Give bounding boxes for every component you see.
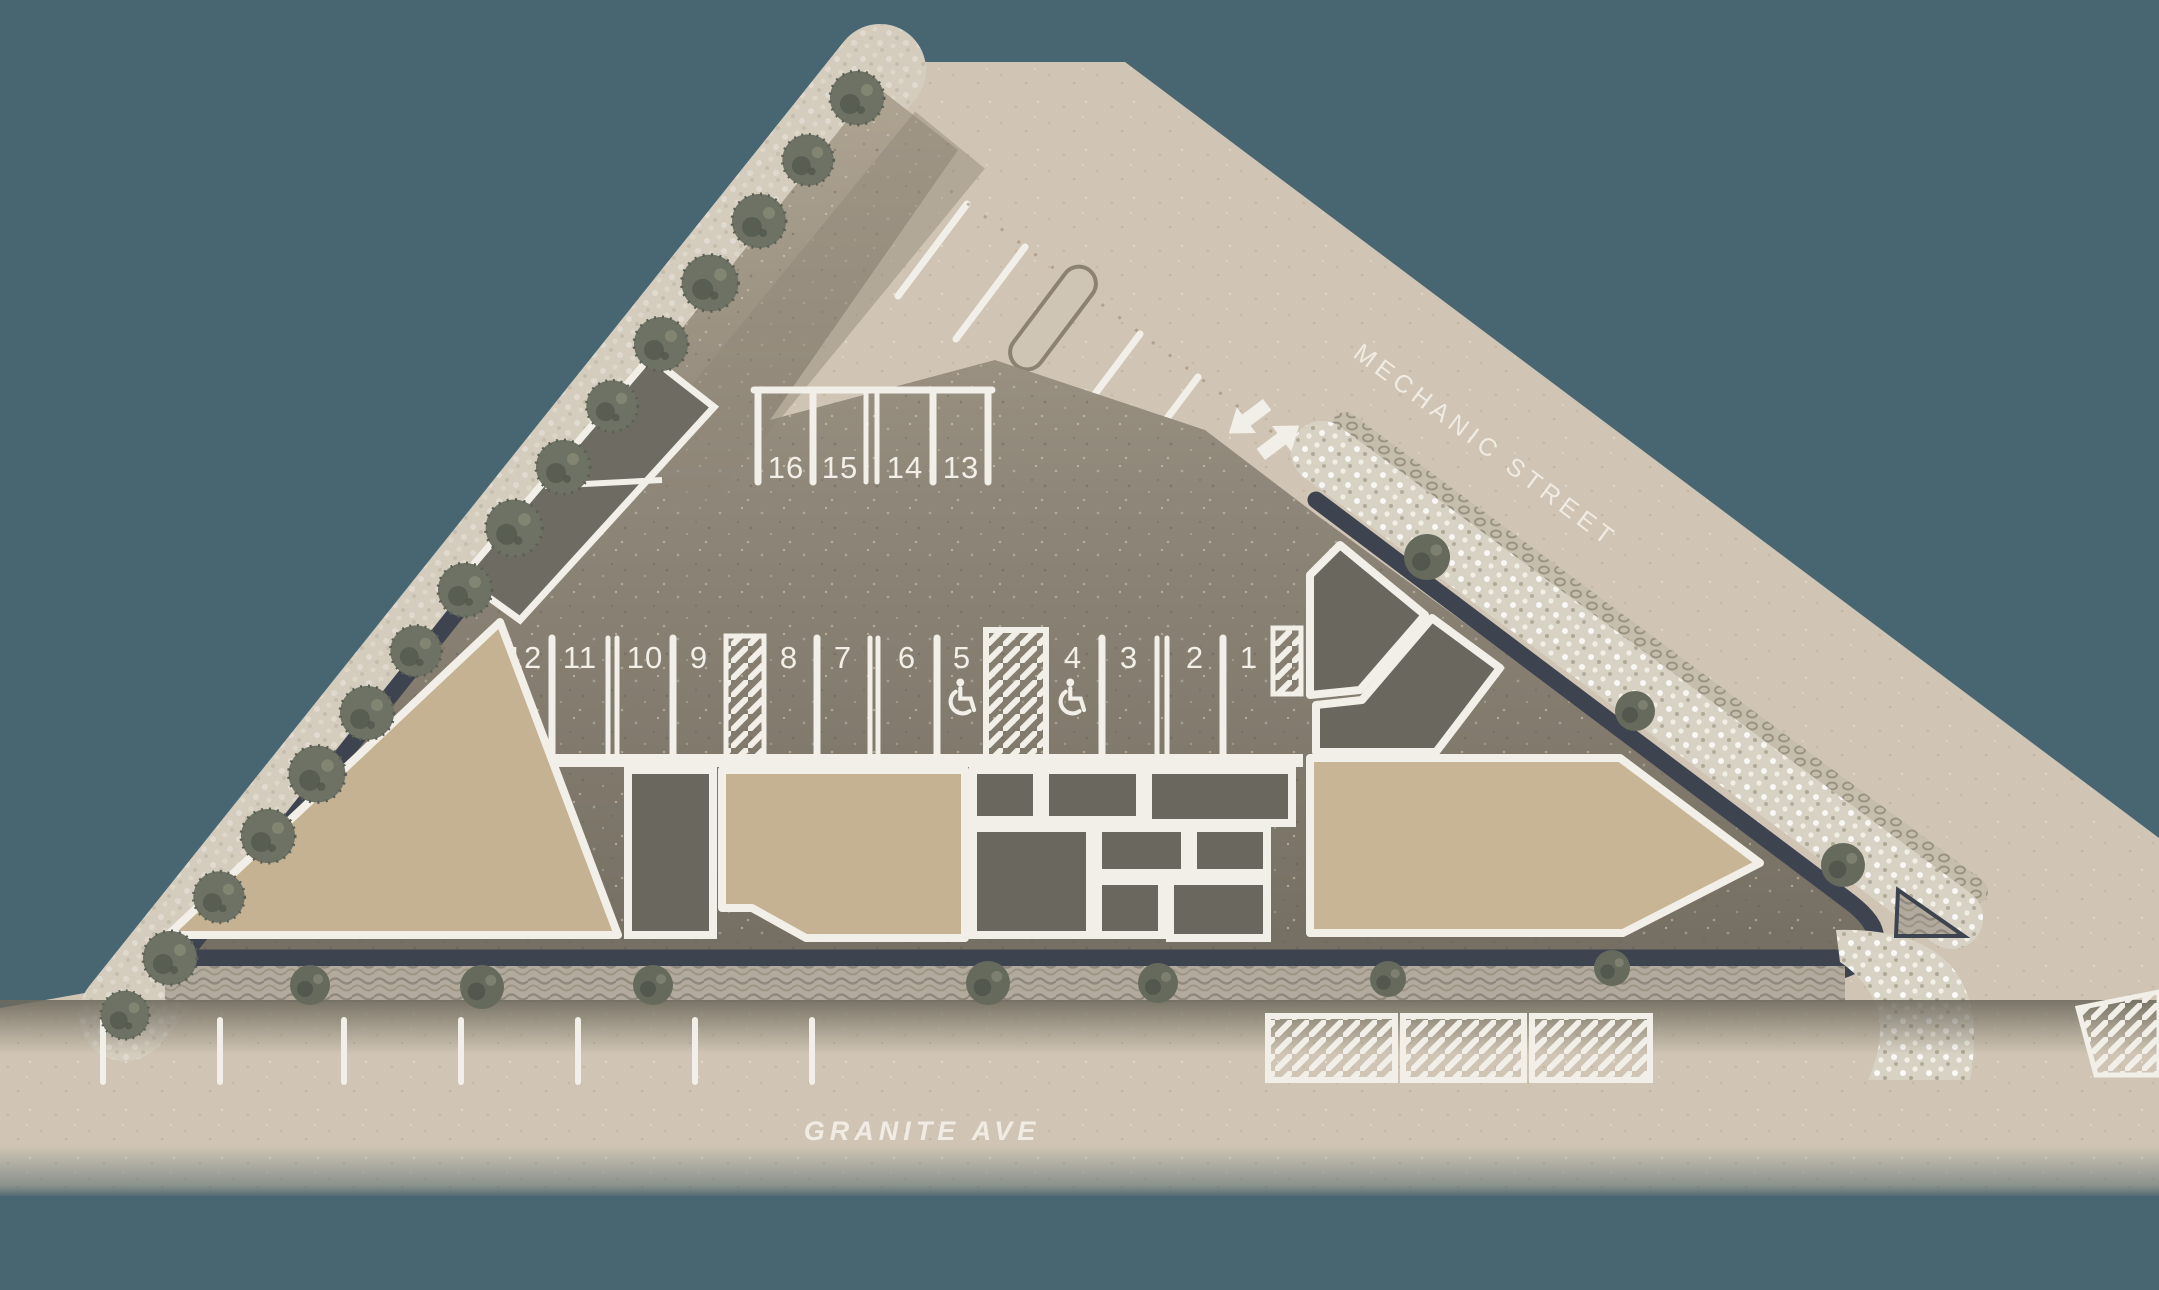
shrub-icon <box>966 961 1010 1005</box>
tree-icon <box>830 71 884 125</box>
parking-spot-label: 1 <box>1240 640 1258 675</box>
tree-icon <box>143 931 197 985</box>
shrub-icon <box>1615 691 1655 731</box>
shrub-icon <box>1138 963 1178 1003</box>
tree-icon <box>634 317 688 371</box>
parking-spot-label: 2 <box>1186 640 1204 675</box>
parking-spot-label: 14 <box>887 450 923 485</box>
pad-cluster <box>973 770 1292 938</box>
granite-ave-label: GRANITE AVE <box>804 1116 1041 1146</box>
shrub-icon <box>633 965 673 1005</box>
tree-icon <box>682 255 739 312</box>
parking-spot-label: 3 <box>1120 640 1138 675</box>
tree-icon <box>289 746 346 803</box>
parking-spot-label: 10 <box>627 640 663 675</box>
granite-curb-shade <box>0 1000 2159 1054</box>
shrub-icon <box>460 965 504 1009</box>
tree-icon <box>782 134 833 185</box>
tree-icon <box>241 809 295 863</box>
tree-icon <box>536 440 590 494</box>
pad-dark-left <box>628 770 713 935</box>
tree-icon <box>193 871 244 922</box>
tree-icon <box>438 563 492 617</box>
parking-spot-label: 6 <box>898 640 916 675</box>
parking-spot-label: 4 <box>1064 640 1082 675</box>
bottom-fade <box>0 1146 2159 1200</box>
tree-icon <box>586 380 637 431</box>
tree-icon <box>486 500 543 557</box>
parking-spot-label: 11 <box>563 640 597 675</box>
parking-spot-label: 5 <box>953 640 971 675</box>
parking-spot-label: 8 <box>780 640 798 675</box>
parking-spot-label: 13 <box>943 450 979 485</box>
corner-hatched-zone <box>2078 992 2159 1075</box>
site-plan: 16 15 14 13 12 11 10 9 8 <box>0 0 2159 1290</box>
shrub-icon <box>1370 961 1406 997</box>
parking-spot-label: 7 <box>834 640 852 675</box>
building-middle <box>722 770 965 938</box>
tree-icon <box>340 686 394 740</box>
tree-icon <box>390 625 441 676</box>
parking-spot-label: 15 <box>822 450 858 485</box>
shrub-icon <box>290 965 330 1005</box>
tree-icon <box>732 194 786 248</box>
parking-spot-label: 9 <box>690 640 708 675</box>
aisle-edge-line <box>493 754 1303 767</box>
site-plan-canvas: 16 15 14 13 12 11 10 9 8 <box>0 0 2159 1290</box>
shrub-icon <box>1404 534 1450 580</box>
granite-hatched-zones <box>1268 1016 1650 1080</box>
shrub-icon <box>1594 950 1630 986</box>
parking-spot-label: 16 <box>768 450 804 485</box>
shrub-icon <box>1821 843 1865 887</box>
tree-icon <box>101 991 150 1040</box>
